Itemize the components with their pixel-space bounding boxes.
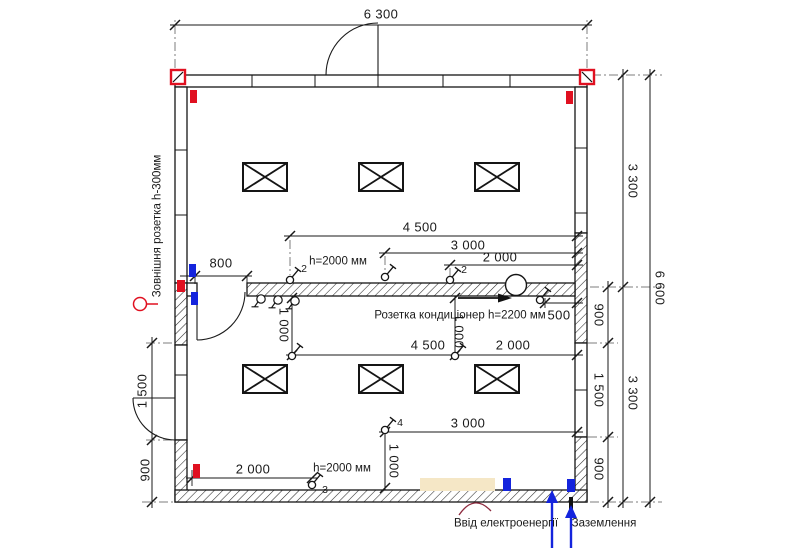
socket-symbol xyxy=(269,296,283,308)
circuit-number-2b: 2 xyxy=(461,265,467,276)
dim-low-3000: 3 000 xyxy=(451,417,486,430)
wall-top xyxy=(175,75,587,87)
wall-left-mid xyxy=(175,283,187,345)
ac-outlet-circle xyxy=(506,275,527,296)
cable-loop xyxy=(459,503,491,515)
label-switch-height-bottom: h=2000 мм xyxy=(313,463,371,475)
label-external-socket: Зовнішня розетка h-300мм xyxy=(152,155,164,298)
circuit-number-3: 3 xyxy=(322,485,328,496)
ceiling-light xyxy=(243,365,287,393)
label-ac-socket: Розетка кондиціонер h=2200 мм xyxy=(374,310,545,322)
dim-overall-height: 6 600 xyxy=(654,271,667,306)
label-grounding: Заземлення xyxy=(572,518,637,530)
switch-symbol xyxy=(381,264,396,280)
dim-right-900-top: 900 xyxy=(593,304,606,327)
switch-symbol xyxy=(288,343,303,359)
red-socket xyxy=(177,280,185,292)
wall-left-upper xyxy=(175,87,187,283)
dim-mid-1000-left: 1 000 xyxy=(278,308,291,343)
label-switch-height-top: h=2000 мм xyxy=(309,256,367,268)
blue-socket xyxy=(503,478,511,491)
ceiling-light xyxy=(359,365,403,393)
dim-right-1500: 1 500 xyxy=(593,373,606,408)
wall-left-door-zone xyxy=(175,345,187,440)
door-partition xyxy=(197,292,245,340)
ceiling-light xyxy=(243,163,287,191)
circuit-number-4: 4 xyxy=(397,418,403,429)
red-socket xyxy=(566,91,573,104)
dim-top-3000: 3 000 xyxy=(451,239,486,252)
power-panel xyxy=(420,478,495,491)
dim-right-lower-3300: 3 300 xyxy=(627,376,640,411)
column-marker-top-left xyxy=(171,70,185,84)
circuit-number-2a: 2 xyxy=(301,264,307,275)
red-socket xyxy=(193,464,200,478)
column-marker-top-right xyxy=(580,70,594,84)
dim-left-1500: 1 500 xyxy=(136,374,149,409)
blue-socket xyxy=(189,264,196,277)
dim-overall-width: 6 300 xyxy=(364,8,399,21)
dim-mid-2000: 2 000 xyxy=(496,339,531,352)
dim-right-900-bottom: 900 xyxy=(593,458,606,481)
blue-socket xyxy=(567,479,575,492)
dim-top-4500: 4 500 xyxy=(403,221,438,234)
ceiling-light xyxy=(475,365,519,393)
dim-low-1000: 1 000 xyxy=(388,444,401,479)
dim-door-800: 800 xyxy=(210,257,233,270)
dim-left-900: 900 xyxy=(139,459,152,482)
dim-low-2000: 2 000 xyxy=(236,463,271,476)
floor-plan: 6 300 3 300 3 300 6 600 900 1 500 900 1 … xyxy=(0,0,800,555)
dim-ac-500: 500 xyxy=(548,309,571,322)
red-socket xyxy=(190,90,197,103)
switch-symbol xyxy=(286,267,301,283)
dim-right-upper-3300: 3 300 xyxy=(627,164,640,199)
ceiling-light xyxy=(359,163,403,191)
external-socket-symbol xyxy=(134,298,159,311)
dim-mid-4500: 4 500 xyxy=(411,339,446,352)
door-top xyxy=(326,23,378,75)
wall-right-upper xyxy=(575,87,587,233)
switch-symbol xyxy=(381,417,396,433)
label-power-input: Ввід електроенергії xyxy=(454,518,558,530)
dim-top-2000: 2 000 xyxy=(483,251,518,264)
blue-socket xyxy=(191,292,198,305)
switch-symbol xyxy=(446,267,461,283)
ceiling-light xyxy=(475,163,519,191)
